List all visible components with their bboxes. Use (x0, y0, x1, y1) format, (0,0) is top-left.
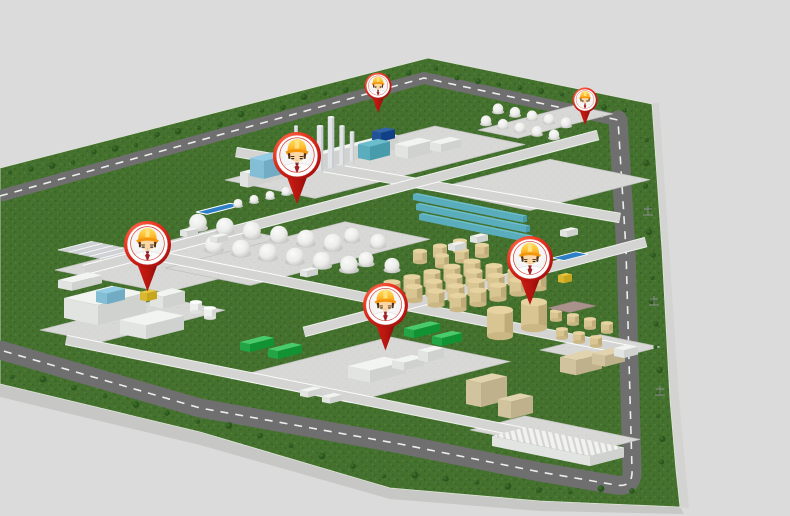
plant-scene-render (0, 0, 790, 516)
eyebrow-left (374, 86, 376, 87)
worker-location-pin[interactable] (123, 220, 172, 293)
eye-left (375, 87, 377, 88)
eye-left (582, 101, 584, 102)
map-pin-icon (362, 282, 409, 352)
sideburn-right (154, 241, 156, 247)
mouth (383, 311, 387, 312)
mouth (295, 162, 299, 163)
worker-location-pin[interactable] (506, 235, 554, 307)
map-pin-icon (506, 235, 554, 307)
nose (297, 160, 298, 162)
eye-left (141, 246, 144, 247)
eyebrow-left (141, 244, 145, 245)
sideburn-right (391, 302, 393, 308)
nose (147, 247, 148, 249)
hard-hat-ridge (145, 228, 149, 237)
sideburn-left (522, 256, 524, 262)
worker-location-pin[interactable] (572, 87, 598, 126)
worker-location-pin[interactable] (362, 282, 409, 352)
map-pin-icon (364, 72, 392, 114)
hard-hat-ridge (295, 139, 300, 148)
sideburn-right (536, 256, 538, 262)
eye-left (380, 307, 383, 308)
sideburn-right (382, 84, 383, 87)
eyebrow-right (586, 100, 588, 101)
eyebrow-left (291, 156, 295, 157)
eye-left (291, 158, 294, 159)
eye-right (300, 158, 303, 159)
sideburn-left (288, 153, 290, 159)
eye-right (586, 101, 588, 102)
industrial-park-3d-view (0, 0, 790, 516)
map-pin-icon (272, 131, 322, 206)
eyebrow-right (300, 156, 304, 157)
nose (530, 262, 531, 264)
nose (585, 102, 586, 103)
map-pin-icon (572, 87, 598, 126)
eye-right (533, 261, 536, 262)
eye-left (524, 261, 527, 262)
eyebrow-left (582, 100, 584, 101)
worker-location-pin[interactable] (272, 131, 322, 206)
hard-hat-ridge (528, 243, 532, 252)
eye-right (388, 307, 391, 308)
eyebrow-right (532, 259, 536, 260)
sideburn-left (138, 241, 140, 247)
nose (378, 88, 379, 89)
mouth (145, 250, 149, 251)
eyebrow-right (379, 86, 381, 87)
mouth (528, 265, 532, 266)
eye-right (150, 246, 153, 247)
sideburn-right (588, 98, 589, 101)
sideburn-right (304, 153, 306, 159)
eyebrow-left (524, 259, 528, 260)
mouth (377, 90, 379, 91)
eye-right (380, 87, 382, 88)
hard-hat-ridge (377, 77, 380, 82)
sideburn-left (373, 84, 374, 87)
eyebrow-right (149, 244, 153, 245)
hard-hat-ridge (383, 289, 387, 298)
hard-hat-ridge (584, 91, 586, 96)
map-pin-icon (123, 220, 172, 293)
sideburn-left (377, 302, 379, 308)
eyebrow-left (379, 305, 383, 306)
sideburn-left (580, 98, 581, 101)
eyebrow-right (387, 305, 391, 306)
worker-location-pin[interactable] (364, 72, 392, 114)
nose (385, 308, 386, 310)
